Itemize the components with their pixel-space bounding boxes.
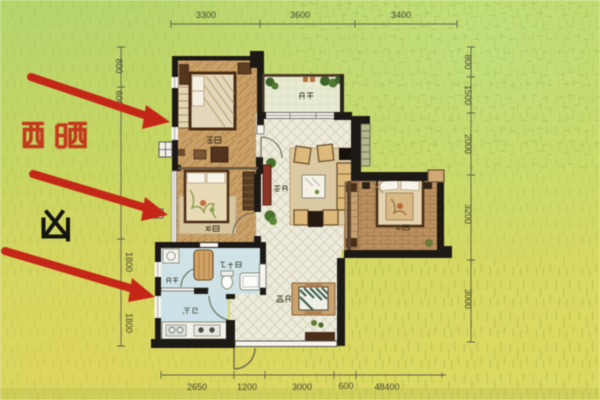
svg-text:800: 800 <box>463 54 473 69</box>
svg-text:3000: 3000 <box>292 382 312 392</box>
svg-text:1500: 1500 <box>463 85 473 105</box>
svg-text:3300: 3300 <box>196 10 216 20</box>
svg-text:3400: 3400 <box>391 10 411 20</box>
svg-text:3600: 3600 <box>290 10 310 20</box>
svg-text:1800: 1800 <box>124 252 134 272</box>
svg-text:3000: 3000 <box>463 289 473 309</box>
svg-text:48400: 48400 <box>374 382 399 392</box>
svg-text:600: 600 <box>338 381 353 391</box>
svg-text:800: 800 <box>114 58 124 73</box>
svg-text:3200: 3200 <box>463 204 473 224</box>
svg-text:2000: 2000 <box>463 134 473 154</box>
svg-text:1200: 1200 <box>237 382 257 392</box>
svg-text:2650: 2650 <box>187 382 207 392</box>
svg-text:1800: 1800 <box>124 313 134 333</box>
